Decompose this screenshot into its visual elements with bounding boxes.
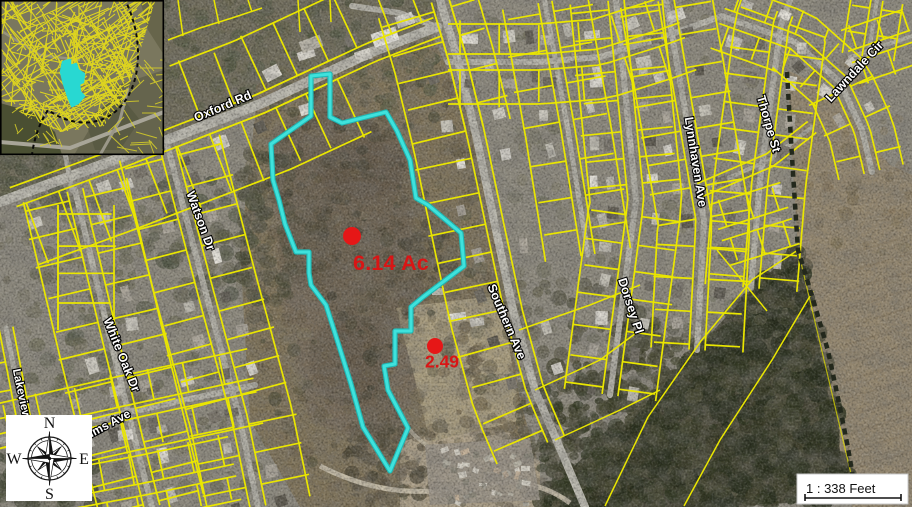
svg-text:S: S	[45, 486, 54, 503]
svg-text:2.49: 2.49	[425, 352, 459, 372]
svg-text:6.14 Ac: 6.14 Ac	[353, 251, 429, 275]
svg-text:1 : 338 Feet: 1 : 338 Feet	[806, 481, 876, 496]
svg-text:N: N	[44, 415, 56, 432]
svg-text:W: W	[6, 451, 22, 468]
svg-text:E: E	[79, 451, 89, 468]
